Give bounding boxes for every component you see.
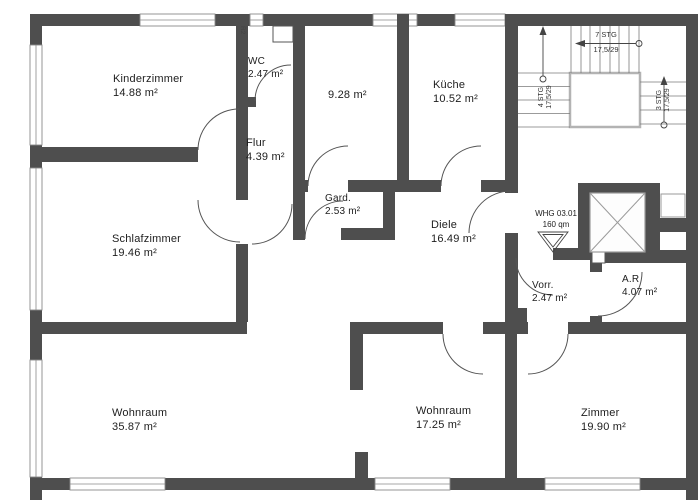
room-label-zimmer: Zimmer19.90 m²: [581, 406, 626, 434]
wall-segment: [30, 14, 42, 45]
stair-left-tread: 17,5/29: [546, 68, 554, 126]
wall-segment: [215, 14, 250, 26]
wall-segment: [640, 478, 698, 490]
room-label-schlafzimmer: Schlafzimmer19.46 m²: [112, 232, 181, 260]
wall-segment: [483, 322, 505, 334]
room-label-diele: Diele16.49 m²: [431, 218, 476, 246]
wall-segment: [30, 478, 70, 490]
stair-right-steps: 3 STG: [656, 71, 664, 129]
door-arc-kueche: [441, 146, 481, 186]
room-label-wohnraum-1: Wohnraum35.87 m²: [112, 406, 167, 434]
window: [375, 478, 450, 490]
window: [373, 14, 417, 26]
wall-segment: [568, 322, 698, 334]
wall-segment: [553, 248, 590, 260]
wall-segment: [417, 14, 455, 26]
door-arc-zimmer: [528, 334, 568, 374]
wall-segment: [590, 316, 602, 322]
room-label-room-928: 9.28 m²: [328, 88, 367, 102]
apartment-number: WHG 03.01: [526, 209, 586, 220]
wall-segment: [450, 478, 545, 490]
wall-segment: [236, 244, 248, 322]
door-arc-flur: [252, 204, 292, 244]
room-label-abstellraum: A.R4.07 m²: [622, 274, 657, 299]
floor-plan: Kinderzimmer14.88 m² WC2.47 m² 9.28 m² K…: [0, 0, 700, 500]
wall-segment: [30, 310, 42, 360]
wall-segment: [355, 452, 368, 478]
room-label-garderobe: Gard.2.53 m²: [325, 193, 360, 218]
stair-label-left-run: 4 STG 17,5/29: [538, 68, 554, 126]
stair-label-up-tread: 17,5/29: [584, 46, 628, 55]
wall-segment: [350, 334, 363, 390]
room-label-kinderzimmer: Kinderzimmer14.88 m²: [113, 72, 183, 100]
room-label-vorraum: Vorr.2.47 m²: [532, 280, 567, 305]
wall-segment: [505, 14, 698, 26]
shaft-box: [661, 194, 685, 217]
wall-segment: [645, 183, 660, 252]
window: [30, 45, 42, 145]
elevator: [590, 193, 645, 252]
window: [250, 14, 263, 26]
room-label-wc: WC2.47 m²: [248, 56, 283, 81]
window: [70, 478, 165, 490]
wall-segment: [293, 14, 305, 240]
wall-segment: [517, 322, 528, 334]
room-label-flur: Flur4.39 m²: [246, 136, 285, 164]
wall-segment: [341, 228, 395, 240]
wall-segment: [165, 478, 375, 490]
wall-segment: [236, 26, 248, 200]
stair-label-up-steps: 7 STG: [584, 31, 628, 40]
stair-left-steps: 4 STG: [538, 68, 546, 126]
duct-niche: [592, 252, 605, 263]
door-arc-kinderzimmer: [198, 109, 239, 150]
window: [545, 478, 640, 490]
window: [30, 168, 42, 310]
window: [455, 14, 505, 26]
stair-label-right-run: 3 STG 17,5/29: [656, 71, 672, 129]
stair-right-tread: 17,5/29: [664, 71, 672, 129]
door-arc-schlafzimmer: [198, 200, 240, 242]
room-label-kueche: Küche10.52 m²: [433, 78, 478, 106]
window: [30, 360, 42, 477]
stair-landing: [570, 73, 640, 127]
duct-niche: [273, 26, 293, 42]
wall-segment: [505, 14, 518, 193]
wall-segment: [30, 145, 42, 168]
wall-segment: [42, 322, 247, 334]
wall-segment: [397, 14, 409, 192]
window: [140, 14, 215, 26]
wall-segment: [481, 180, 518, 192]
door-arc-wohnraum-2: [443, 334, 483, 374]
wall-segment: [293, 180, 308, 192]
wall-segment: [30, 14, 140, 26]
shaft-label: R2: [239, 26, 246, 34]
apartment-area: 160 qm: [526, 220, 586, 231]
wall-segment: [660, 218, 698, 232]
wall-segment: [505, 334, 517, 478]
wall-segment: [350, 322, 443, 334]
wall-segment: [42, 147, 198, 162]
room-label-wohnraum-2: Wohnraum17.25 m²: [416, 404, 471, 432]
apartment-marker-label: WHG 03.01 160 qm: [526, 209, 586, 230]
wall-segment: [348, 180, 441, 192]
wall-segment: [263, 14, 373, 26]
door-arc-room-928: [308, 146, 348, 186]
